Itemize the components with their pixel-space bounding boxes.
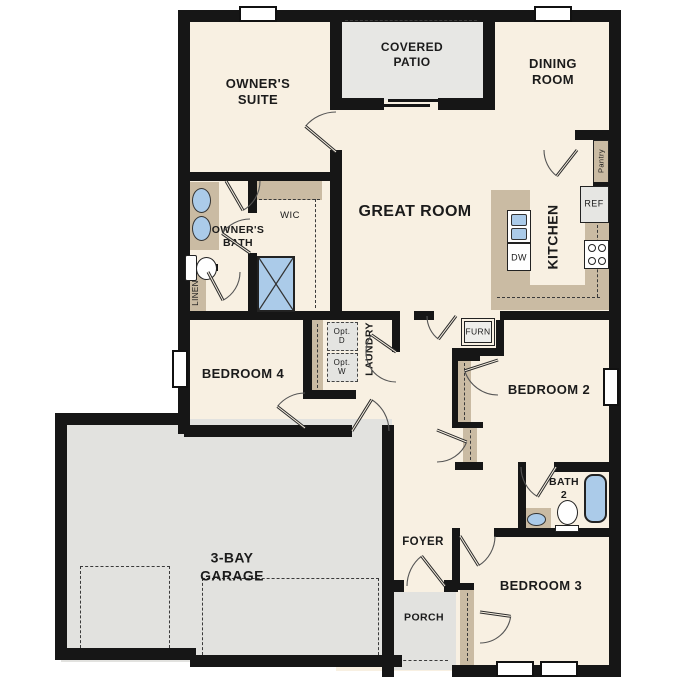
sink-basin — [511, 228, 527, 240]
window — [540, 661, 578, 677]
toilet-bowl — [196, 257, 217, 280]
dining-room-label: DINING ROOM — [529, 56, 577, 89]
covered-patio-label: COVERED PATIO — [381, 40, 443, 70]
wall-segment — [248, 253, 257, 316]
garage-door-outline — [80, 566, 170, 648]
wall-segment — [382, 580, 404, 592]
wall-segment — [452, 665, 621, 677]
wall-segment — [330, 98, 384, 110]
opt-washer-label: Opt. W — [334, 358, 351, 376]
linen-label: LINEN — [191, 280, 201, 306]
closet-rod-dashed — [467, 593, 468, 661]
wall-segment — [392, 311, 400, 352]
wall-segment — [455, 422, 483, 428]
garage-label: 3-BAY GARAGE — [200, 550, 264, 585]
wall-segment — [500, 311, 615, 320]
vanity-sink — [192, 188, 211, 213]
closet-rod-dashed — [464, 363, 465, 420]
range-burner — [588, 257, 596, 265]
sink-basin — [511, 214, 527, 226]
wall-segment — [483, 13, 495, 108]
wall-segment — [330, 13, 342, 108]
kitchen-label: KITCHEN — [544, 204, 562, 269]
bedroom3-label: BEDROOM 3 — [500, 578, 582, 594]
sliding-door — [384, 104, 430, 107]
wall-segment — [554, 462, 609, 472]
wall-segment — [330, 150, 342, 316]
toilet-bowl — [557, 500, 578, 525]
great-room-label: GREAT ROOM — [358, 202, 471, 222]
foyer-label: FOYER — [402, 535, 444, 549]
wall-segment — [609, 10, 621, 677]
wall-segment — [444, 580, 458, 592]
wic-rod-dashed — [315, 199, 316, 308]
bedroom4-label: BEDROOM 4 — [202, 366, 284, 382]
range-burner — [598, 257, 606, 265]
vanity-sink — [192, 216, 211, 241]
refrigerator-label: REF — [584, 198, 603, 209]
wall-segment — [455, 462, 483, 470]
wall-segment — [55, 648, 196, 660]
closet-rod-dashed — [317, 324, 318, 388]
wall-segment — [248, 181, 257, 213]
wall-segment — [414, 311, 434, 320]
wall-segment — [575, 130, 609, 140]
range-burner — [588, 244, 596, 252]
bedroom2-label: BEDROOM 2 — [508, 382, 590, 398]
wall-segment — [55, 413, 67, 660]
bath2-label: BATH 2 — [549, 476, 579, 502]
window — [534, 6, 572, 22]
wall-segment — [458, 355, 480, 361]
pantry-label: Pantry — [596, 149, 605, 173]
owners-suite-label: OWNER'S SUITE — [226, 76, 290, 109]
vanity-sink — [527, 513, 546, 526]
wall-segment — [184, 425, 352, 437]
dishwasher-label: DW — [511, 252, 527, 263]
wall-segment — [494, 528, 518, 537]
closet-rod-dashed — [470, 430, 471, 460]
wic-label: WIC — [280, 210, 300, 222]
window — [603, 368, 619, 406]
wall-segment — [382, 425, 394, 439]
wall-segment — [184, 311, 400, 320]
wall-segment — [55, 413, 190, 425]
window — [172, 350, 188, 388]
range — [584, 240, 609, 269]
wall-segment — [303, 390, 356, 399]
wic-shelf — [257, 181, 322, 200]
floor-plan: OWNER'S SUITE COVERED PATIO DINING ROOM … — [0, 0, 687, 687]
wall-segment — [190, 655, 402, 667]
porch-label: PORCH — [404, 611, 444, 624]
porch-floor — [394, 592, 456, 670]
window — [239, 6, 277, 22]
bathtub — [584, 474, 607, 523]
owners-bath-label: OWNER'S BATH — [212, 224, 265, 250]
furnace-label: FURN — [465, 327, 490, 338]
wall-segment — [184, 172, 336, 181]
range-burner — [598, 244, 606, 252]
garage-door-outline — [202, 578, 379, 655]
toilet — [555, 525, 579, 532]
patio-edge-dashed — [345, 20, 477, 21]
wall-segment — [452, 528, 460, 583]
sliding-door — [388, 99, 438, 102]
shower — [257, 256, 295, 312]
wall-segment — [452, 355, 458, 428]
wall-segment — [438, 98, 495, 110]
laundry-label: LAUNDRY — [363, 322, 376, 376]
porch-edge-dashed — [398, 660, 448, 661]
wic-rod-dashed — [259, 199, 320, 200]
counter-edge-dashed — [497, 297, 600, 298]
opt-dryer-label: Opt. D — [334, 327, 351, 345]
window — [496, 661, 534, 677]
wall-segment — [382, 437, 394, 677]
wall-segment — [303, 320, 312, 394]
